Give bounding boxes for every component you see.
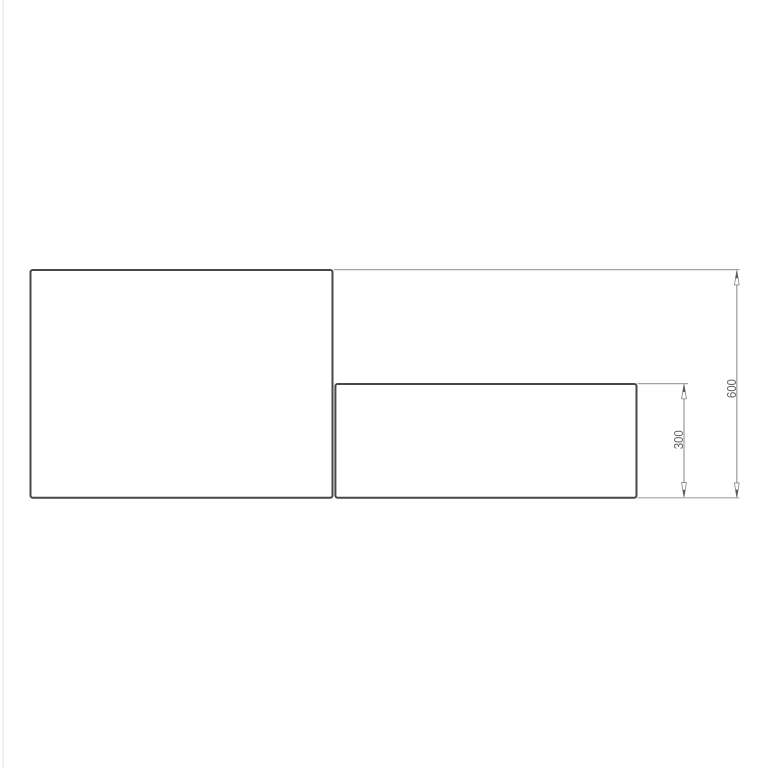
svg-text:600: 600 [724,379,739,398]
svg-text:300: 300 [671,430,686,449]
